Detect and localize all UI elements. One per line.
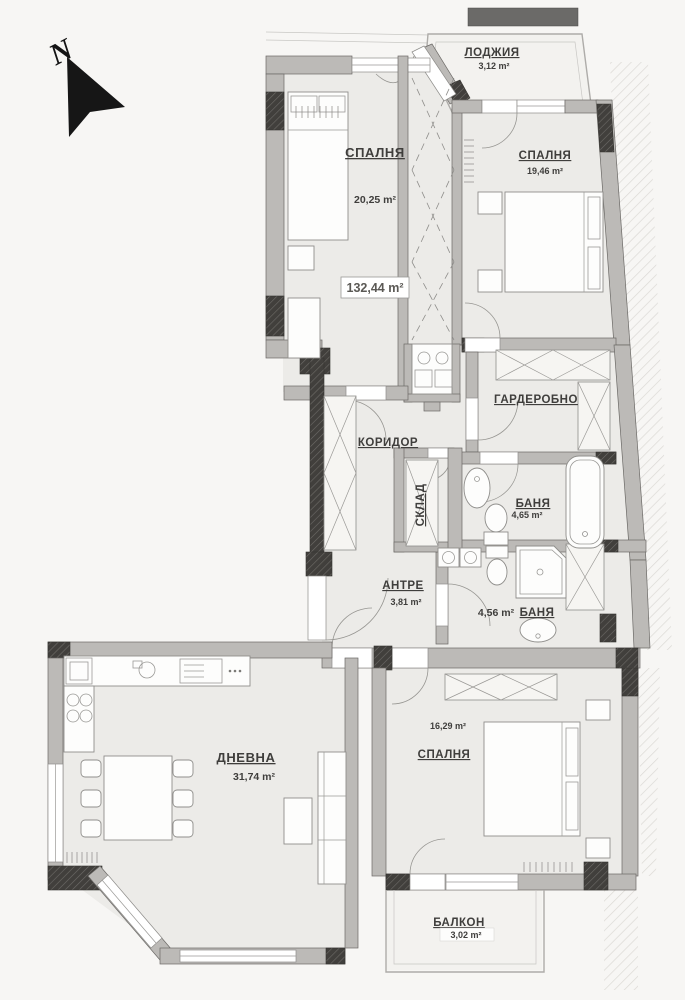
- label-wardrobe: ГАРДЕРОБНО: [494, 394, 578, 406]
- label-corridor: КОРИДОР: [358, 437, 418, 449]
- label-bathroom2: БАНЯ: [520, 607, 555, 619]
- area-bedroom3: 16,29 m²: [430, 721, 466, 731]
- label-bedroom2: СПАЛНЯ: [519, 150, 572, 162]
- label-storage: СКЛАД: [415, 484, 427, 527]
- compass-north: N: [43, 32, 125, 137]
- label-loggia: ЛОДЖИЯ: [465, 47, 520, 59]
- area-balcony: 3,02 m²: [450, 930, 481, 940]
- floor-plan-drawing: СПАЛНЯ 20,25 m² СПАЛНЯ 19,46 m² ЛОДЖИЯ 3…: [0, 0, 685, 1000]
- area-entry: 3,81 m²: [390, 597, 421, 607]
- area-bedroom1: 20,25 m²: [354, 194, 397, 206]
- label-bedroom3: СПАЛНЯ: [418, 749, 471, 761]
- total-area-value: 132,44 m²: [347, 281, 404, 295]
- label-bathroom1: БАНЯ: [516, 498, 551, 510]
- floor-plan-page: СПАЛНЯ 20,25 m² СПАЛНЯ 19,46 m² ЛОДЖИЯ 3…: [0, 0, 685, 1000]
- north-arrow-icon: [67, 57, 125, 137]
- label-entry: АНТРЕ: [382, 580, 423, 592]
- label-balcony: БАЛКОН: [433, 917, 485, 929]
- area-bathroom2: 4,56 m²: [478, 607, 515, 619]
- area-living: 31,74 m²: [233, 771, 276, 783]
- area-bedroom2: 19,46 m²: [527, 166, 563, 176]
- label-living: ДНЕВНА: [216, 750, 275, 765]
- area-loggia: 3,12 m²: [478, 61, 509, 71]
- label-bedroom1: СПАЛНЯ: [345, 145, 405, 160]
- area-bathroom1: 4,65 m²: [511, 510, 542, 520]
